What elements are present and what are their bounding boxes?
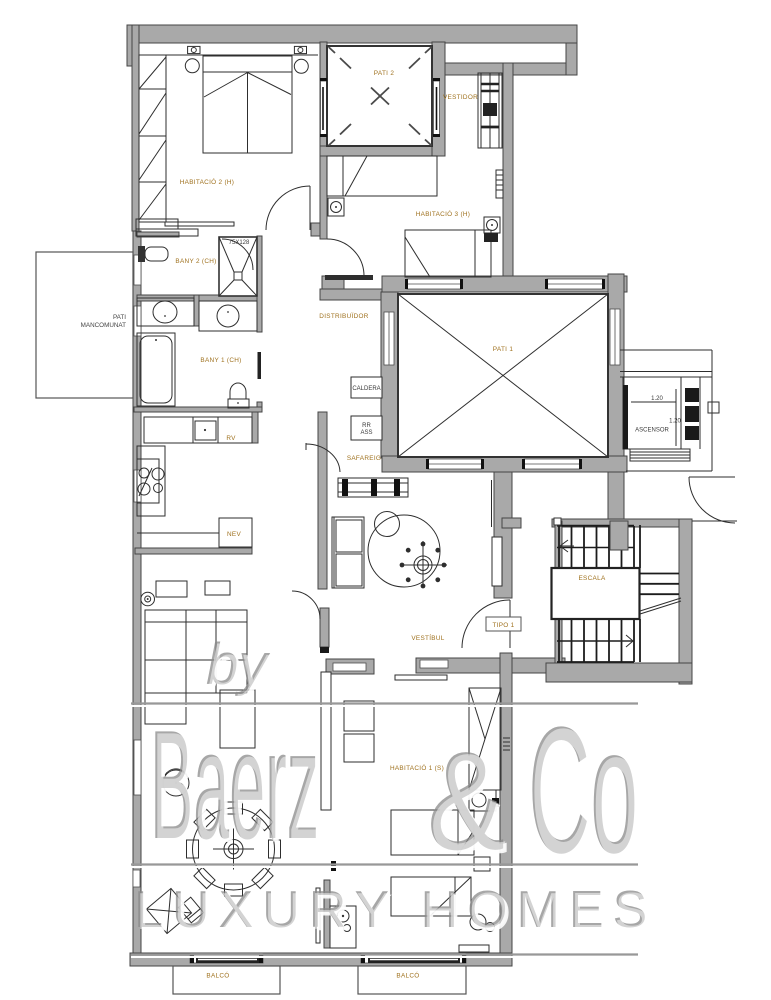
svg-text:NEV: NEV (227, 531, 241, 538)
svg-text:VESTÍBUL: VESTÍBUL (411, 633, 444, 642)
svg-text:PATI 2: PATI 2 (374, 70, 395, 77)
svg-text:PATI 1: PATI 1 (493, 346, 514, 353)
svg-text:RV: RV (226, 435, 236, 442)
svg-text:BANY 2 (CH): BANY 2 (CH) (175, 258, 216, 265)
svg-text:BANY 1 (CH): BANY 1 (CH) (200, 357, 241, 364)
svg-text:1.20: 1.20 (669, 419, 681, 425)
svg-text:TIPO 1: TIPO 1 (492, 622, 514, 629)
svg-text:HABITACIÓ 3 (H): HABITACIÓ 3 (H) (416, 209, 470, 218)
svg-text:CALDERA: CALDERA (352, 386, 380, 392)
svg-text:1.20: 1.20 (651, 396, 663, 402)
svg-text:by: by (208, 634, 272, 699)
svg-text:BALCÓ: BALCÓ (206, 971, 229, 980)
svg-text:ASS: ASS (360, 430, 372, 436)
svg-text:DISTRIBUÏDOR: DISTRIBUÏDOR (319, 312, 368, 320)
svg-text:PATI: PATI (113, 314, 126, 321)
svg-text:SAFAREIG: SAFAREIG (347, 455, 381, 462)
svg-text:ASCENSOR: ASCENSOR (635, 428, 669, 434)
svg-text:Co: Co (530, 692, 640, 893)
svg-text:LUXURY HOMES: LUXURY HOMES (136, 883, 658, 941)
svg-text:VESTIDOR: VESTIDOR (443, 94, 478, 101)
svg-text:Baerz: Baerz (152, 700, 321, 873)
svg-text:&: & (429, 724, 507, 881)
svg-text:MANCOMUNAT: MANCOMUNAT (81, 322, 127, 329)
svg-text:75X128: 75X128 (229, 240, 250, 246)
svg-text:ESCALA: ESCALA (578, 575, 605, 582)
svg-text:BALCÓ: BALCÓ (396, 971, 419, 980)
svg-text:HABITACIÓ 2 (H): HABITACIÓ 2 (H) (180, 177, 234, 186)
svg-text:RR: RR (362, 423, 371, 429)
